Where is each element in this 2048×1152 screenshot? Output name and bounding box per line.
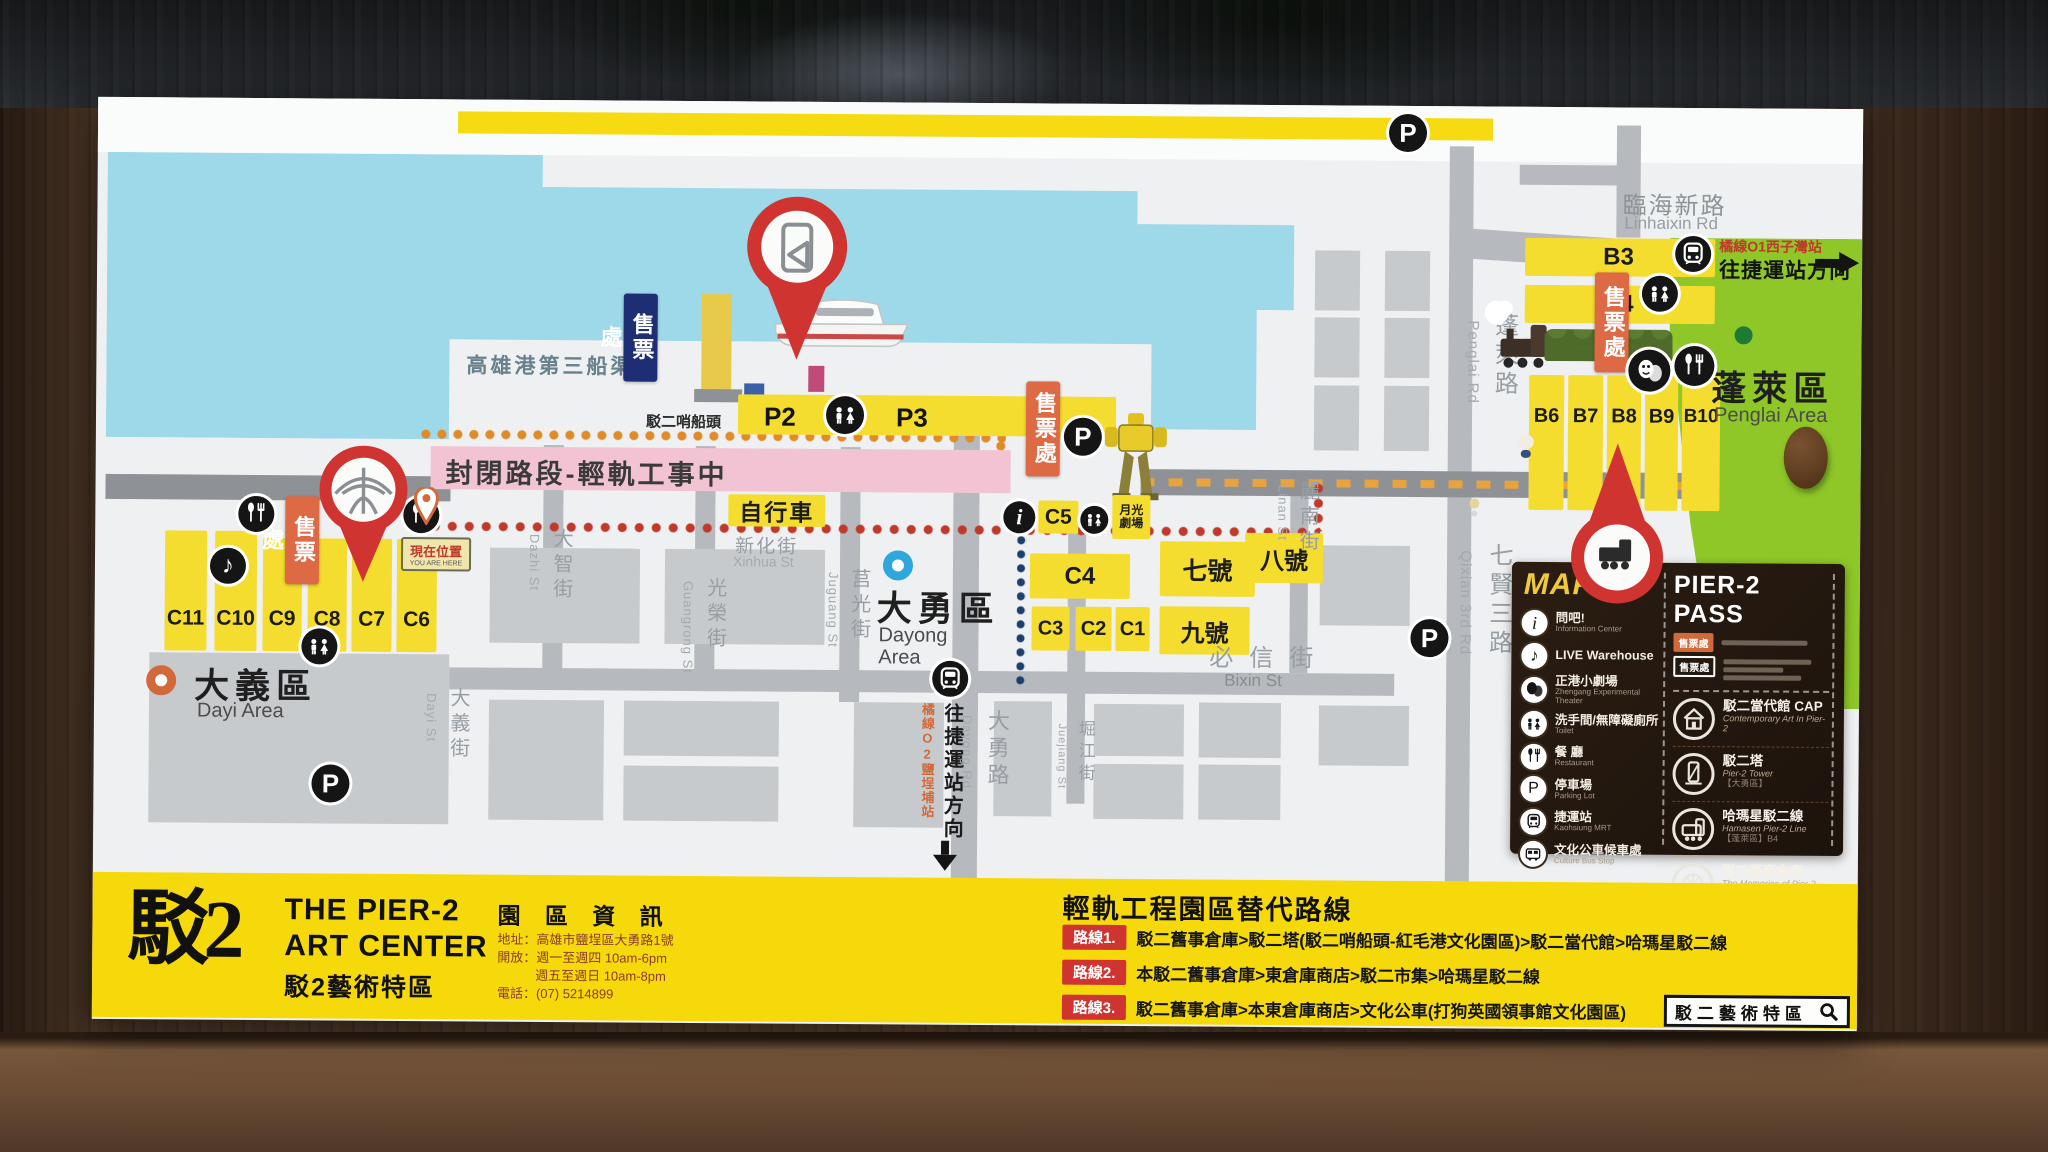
legend-label-en: Parking Lot — [1554, 792, 1595, 801]
dayong-area-label-en1: Dayong — [878, 624, 947, 647]
title-en-2: ART CENTER — [284, 929, 488, 964]
building-block — [1319, 705, 1409, 766]
music-live-warehouse-icon: ♪ — [210, 548, 246, 584]
ferry-pin-marker — [736, 191, 857, 364]
wood-shelf — [0, 1032, 2048, 1152]
pier2-logo: 駁 2 — [127, 890, 245, 969]
street-dazhi-en: Dazhi St — [527, 534, 542, 591]
block-c2: C2 — [1075, 607, 1111, 651]
parking-icon: P — [1389, 114, 1427, 152]
pass-note: 【大勇區】 — [1722, 778, 1773, 788]
logo-char: 駁 — [127, 890, 210, 968]
pass-note: 【蓬萊區】B4 — [1722, 833, 1806, 844]
park-info-lines: 地址：高雄市鹽埕區大勇路1號 開放：週一至週四 10am-6pm 週五至週日 1… — [497, 931, 674, 1004]
street-dazhi-zh: 大智街 — [547, 528, 577, 603]
legend-label-en: Restaurant — [1555, 759, 1594, 768]
restaurant-icon — [1674, 346, 1714, 386]
block-c4: C4 — [1030, 553, 1130, 599]
street-xinhua-en: Xinhua St — [733, 553, 794, 569]
legend-list: i問吧!Information Center ♪LIVE Warehouse 正… — [1520, 610, 1660, 875]
photo-of-sign: 高雄港第三船渠 — [0, 0, 2048, 1152]
block-no7: 七號 — [1160, 541, 1255, 597]
street-linan-en: Linan St — [1275, 485, 1290, 541]
legend-item: 捷運站Kaohsiung MRT — [1520, 809, 1658, 836]
restaurant-icon — [1521, 744, 1547, 770]
pass-label: 哈瑪星駁二線 — [1722, 808, 1806, 824]
street-guangrong-zh: 光榮街 — [700, 577, 730, 652]
building-block — [1314, 385, 1359, 450]
restroom-icon — [1521, 711, 1547, 737]
right-arrow — [1815, 259, 1841, 268]
music-icon: ♪ — [1521, 642, 1547, 668]
route-badge-2: 路線2. — [1062, 960, 1126, 985]
legend-item: 正港小劇場Zhengang Experimental Theater — [1521, 675, 1659, 706]
restaurant-icon — [238, 496, 274, 532]
building-block — [488, 700, 604, 821]
down-arrow — [941, 841, 949, 855]
pass-label: 駁二當代館 CAP — [1723, 698, 1829, 714]
ticket-office-banner-center: 售票處 — [1026, 381, 1061, 476]
penglai-area-label-en: Penglai Area — [1714, 404, 1828, 428]
street-linan-zh: 麗南街 — [1293, 480, 1323, 555]
street-linhaixin-en: Linhaixin Rd — [1624, 214, 1718, 235]
parking-icon: P — [1410, 619, 1448, 657]
dayong-area-label-en2: Area — [878, 646, 920, 669]
building-block — [623, 766, 778, 822]
bus-icon — [1520, 841, 1546, 867]
legend-item: ♪LIVE Warehouse — [1521, 642, 1659, 669]
you-are-here-sign: 現在位置 YOU ARE HERE — [401, 537, 471, 571]
legend-label-en: Zhengang Experimental Theater — [1555, 688, 1659, 706]
info-hours-1: 開放：週一至週四 10am-6pm — [497, 949, 673, 968]
pier-name-label: 駁二哨船頭 — [646, 411, 721, 433]
info-hours-2: 週五至週日 10am-8pm — [497, 967, 673, 986]
pass-label: 駁二塔 — [1723, 753, 1774, 768]
route-row-2: 路線2. 本駁二舊事倉庫>東倉庫商店>駁二市集>哈瑪星駁二線 — [1062, 960, 1540, 988]
legend-item: 餐 廳Restaurant — [1521, 744, 1659, 771]
pass-ticket-row: 售票處 — [1673, 633, 1829, 653]
people-figures — [1469, 498, 1479, 508]
route-row-3: 路線3. 駁二舊事倉庫>本東倉庫商店>文化公車(打狗英國領事館文化園區) — [1062, 995, 1626, 1024]
block-p3: P3 — [896, 402, 928, 433]
you-are-here-zh: 現在位置 — [403, 541, 469, 560]
pass-item: 駁二當代館 CAPContemporary Art In Pier-2 — [1673, 692, 1829, 741]
title-zh: 駁2藝術特區 — [284, 967, 435, 1004]
right-arrow-head — [1839, 252, 1859, 274]
pass-fineprint-group — [1723, 656, 1829, 684]
panel-edge-divider — [1831, 574, 1835, 846]
pass-fineprint — [1721, 640, 1807, 646]
building-block — [1315, 250, 1360, 310]
legend-label-en: Information Center — [1556, 625, 1622, 634]
legend-label-en: Kaohsiung MRT — [1554, 824, 1611, 833]
block-p2: P2 — [764, 402, 796, 433]
pass-ticket-orange: 售票處 — [1673, 633, 1713, 652]
route-badge-1: 路線1. — [1062, 925, 1126, 950]
pass-label-en: Contemporary Art In Pier-2 — [1723, 713, 1829, 734]
dayong-area-dot — [883, 550, 913, 580]
building-block — [1320, 545, 1411, 626]
pass-title: PIER-2 PASS — [1674, 571, 1830, 630]
info-phone: 電話：(07) 5214899 — [497, 985, 673, 1004]
building-block — [1094, 704, 1184, 757]
closed-road-label: 封閉路段-輕軌工事中 — [446, 451, 728, 492]
pier2-map-sign: 高雄港第三船渠 — [92, 97, 1863, 1031]
info-icon: i — [1522, 610, 1548, 636]
building-block — [1314, 317, 1359, 377]
hamasen-train-pin-marker — [1557, 437, 1678, 608]
pier-box-pink — [808, 366, 824, 392]
dayi-area-dot — [146, 665, 176, 695]
street-penglai-en: Penglai Rd — [1464, 320, 1482, 404]
logo-number: 2 — [203, 891, 245, 969]
road-stub — [1520, 165, 1620, 186]
pier-base — [694, 389, 742, 402]
street-bixin-en: Bixin St — [1224, 671, 1282, 691]
metro-icon — [932, 661, 968, 697]
info-address: 地址：高雄市鹽埕區大勇路1號 — [497, 931, 673, 950]
info-icon: i — [1003, 501, 1035, 533]
building-block — [1384, 318, 1429, 378]
legend-item: 文化公車候車處Culture Bus Stop — [1520, 841, 1658, 868]
street-dayi-en: Dayi St — [424, 693, 439, 742]
building-block — [1198, 765, 1280, 821]
street-dayi-zh: 大義街 — [444, 687, 474, 762]
legend-label: 停車場 — [1554, 779, 1595, 792]
theater-masks-icon — [1628, 350, 1670, 392]
pass-item: 哈瑪星駁二線Hamasen Pier-2 Line【蓬萊區】B4 — [1672, 801, 1828, 851]
restroom-icon — [1080, 506, 1108, 534]
theater-masks-icon — [1521, 677, 1547, 703]
you-are-here-pin — [413, 487, 439, 525]
blue-route-line — [1016, 535, 1026, 687]
title-en-1: THE PIER-2 — [284, 893, 459, 928]
pier2-tower-icon — [1672, 753, 1714, 795]
block-c5: C5 — [1038, 500, 1078, 533]
magnifier-icon — [1819, 1002, 1839, 1022]
metro-icon — [1520, 809, 1546, 835]
people-figures — [1518, 435, 1534, 449]
street-juguang-en: Juguang St — [825, 572, 841, 648]
street-juguang-zh: 莒光街 — [844, 568, 874, 643]
ticket-office-banner-penglai: 售票處 — [1594, 272, 1629, 372]
routes-title: 輕軌工程園區替代路線 — [1062, 887, 1352, 928]
hamasen-line-icon — [1672, 808, 1714, 850]
bicycle-label: 自行車 — [728, 494, 825, 527]
robot-statue — [1100, 407, 1171, 502]
pass-label-en: Pier-2 Tower — [1723, 768, 1774, 778]
route-badge-3: 路線3. — [1062, 995, 1126, 1020]
down-arrow-head — [933, 855, 957, 871]
parking-icon: P — [311, 764, 349, 802]
legend-label-en: Culture Bus Stop — [1554, 857, 1642, 866]
penglai-station-dot — [1735, 326, 1753, 344]
block-c3: C3 — [1031, 606, 1069, 650]
street-bixin-zh: 必信街 — [1209, 638, 1329, 674]
route-text-3: 駁二舊事倉庫>本東倉庫商店>文化公車(打狗英國領事館文化園區) — [1136, 995, 1626, 1023]
legend-label: LIVE Warehouse — [1555, 649, 1653, 663]
route-text-2: 本駁二舊事倉庫>東倉庫商店>駁二市集>哈瑪星駁二線 — [1136, 960, 1540, 988]
building-block — [1199, 703, 1281, 759]
restroom-icon — [826, 396, 864, 434]
route-text-1: 駁二舊事倉庫>駁二塔(駁二哨船頭-紅毛港文化園區)>駁二當代館>哈瑪星駁二線 — [1136, 925, 1727, 954]
ferry-pier — [701, 294, 732, 394]
building-block — [1385, 251, 1430, 311]
pass-column: PIER-2 PASS 售票處 售票處 駁二當代館 CAPContemporar… — [1672, 571, 1830, 915]
water-label: 高雄港第三船渠 — [466, 349, 634, 380]
block-c11: C11 — [164, 530, 207, 650]
street-juejiang-zh: 堀江街 — [1072, 720, 1097, 786]
pass-item: 駁二塔Pier-2 Tower【大勇區】 — [1672, 746, 1828, 796]
footer-bar: 駁 2 THE PIER-2 ART CENTER 駁2藝術特區 園 區 資 訊… — [92, 872, 1858, 1029]
ticket-office-banner-ferry: 售票處 — [623, 294, 658, 382]
you-are-here-en: YOU ARE HERE — [403, 560, 469, 567]
parking-icon: P — [1520, 776, 1546, 802]
legend-label-en: Toilet — [1555, 727, 1659, 736]
metro-icon — [1675, 236, 1711, 272]
street-dayong-zh: 大勇路 — [980, 709, 1013, 790]
pass-ticket-row: 售票處 — [1673, 656, 1829, 684]
route-row-1: 路線1. 駁二舊事倉庫>駁二塔(駁二哨船頭-紅毛港文化園區)>駁二當代館>哈瑪星… — [1062, 925, 1727, 955]
search-label: 駁二藝術特區 — [1675, 998, 1807, 1024]
building-block — [1093, 764, 1183, 820]
legend-item: i問吧!Information Center — [1522, 610, 1660, 637]
moonlight-theater-label: 月光劇場 — [1112, 495, 1150, 539]
parking-icon: P — [1064, 418, 1102, 456]
pass-ticket-white: 售票處 — [1673, 656, 1715, 677]
search-box: 駁二藝術特區 — [1664, 995, 1850, 1028]
building-block — [624, 701, 779, 757]
block-c1: C1 — [1115, 607, 1149, 651]
legend-item: 洗手間/無障礙廁所Toilet — [1521, 711, 1659, 738]
street-juejiang-en: Juejiang St — [1055, 724, 1067, 790]
street-qixian-en: Qixian 3rd Rd — [1456, 550, 1474, 655]
mrt-o2-vertical-label: 橘線O2鹽埕埔站 — [917, 703, 937, 873]
dayi-area-label-en: Dayi Area — [197, 700, 284, 724]
street-dayong-en: Dayong Rd — [959, 715, 975, 789]
restroom-icon — [1642, 276, 1678, 312]
wooden-knob — [1784, 427, 1828, 489]
legend-item: P停車場Parking Lot — [1520, 776, 1658, 803]
street-guangrong-en: Guangrong St — [680, 581, 696, 674]
pass-label: 駁二舊事倉庫 — [1722, 863, 1828, 879]
park-info-title: 園 區 資 訊 — [497, 897, 671, 932]
building-block — [1384, 386, 1429, 451]
cap-gallery-icon — [1673, 698, 1715, 740]
panel-divider — [1662, 573, 1666, 845]
